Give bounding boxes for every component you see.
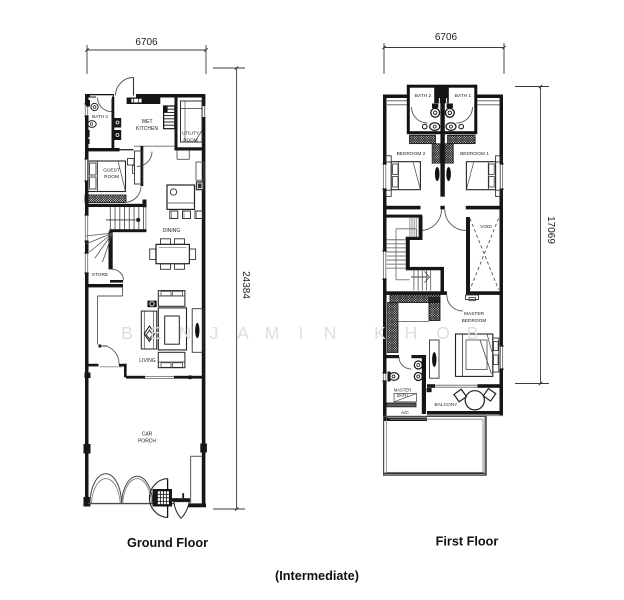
svg-text:N: N — [179, 323, 192, 343]
svg-text:J: J — [210, 323, 219, 343]
svg-text:(Intermediate): (Intermediate) — [275, 569, 359, 583]
svg-text:BEDROOM 1: BEDROOM 1 — [460, 151, 489, 157]
svg-text:ROOM: ROOM — [104, 174, 119, 180]
svg-text:Ground Floor: Ground Floor — [127, 536, 208, 550]
svg-text:DINING: DINING — [163, 228, 181, 234]
svg-text:UTILITY: UTILITY — [182, 131, 199, 136]
svg-text:B: B — [121, 323, 133, 343]
svg-text:BATH 3: BATH 3 — [92, 114, 108, 119]
svg-text:STORE: STORE — [92, 272, 108, 278]
svg-text:O: O — [436, 323, 450, 343]
svg-text:MASTER: MASTER — [464, 311, 485, 317]
svg-text:17069: 17069 — [545, 216, 556, 244]
svg-text:BALCONY: BALCONY — [435, 402, 459, 408]
svg-text:24384: 24384 — [240, 271, 251, 299]
svg-text:M: M — [265, 323, 280, 343]
svg-text:I: I — [299, 323, 304, 343]
svg-text:PORCH: PORCH — [138, 439, 156, 445]
svg-text:GUEST: GUEST — [103, 168, 120, 174]
svg-text:VOID: VOID — [480, 224, 492, 230]
svg-text:A: A — [237, 323, 249, 343]
svg-text:ROOM: ROOM — [183, 138, 197, 143]
svg-text:WET: WET — [141, 119, 152, 125]
svg-text:E: E — [150, 323, 162, 343]
svg-text:LIVING: LIVING — [139, 358, 156, 364]
svg-text:H: H — [405, 323, 418, 343]
svg-text:K: K — [374, 323, 386, 343]
svg-text:BATH 1: BATH 1 — [455, 93, 472, 99]
svg-text:CAR: CAR — [142, 432, 153, 438]
svg-text:6706: 6706 — [135, 37, 158, 48]
svg-text:First Floor: First Floor — [436, 535, 499, 549]
svg-text:6706: 6706 — [435, 32, 458, 43]
svg-text:BEDROOM 2: BEDROOM 2 — [397, 151, 426, 157]
svg-text:A/C: A/C — [401, 410, 410, 416]
svg-text:MASTER: MASTER — [394, 388, 411, 393]
svg-text:B: B — [467, 323, 479, 343]
svg-text:N: N — [324, 323, 337, 343]
svg-text:KITCHEN: KITCHEN — [136, 126, 158, 132]
svg-text:BATH 2: BATH 2 — [415, 93, 432, 99]
